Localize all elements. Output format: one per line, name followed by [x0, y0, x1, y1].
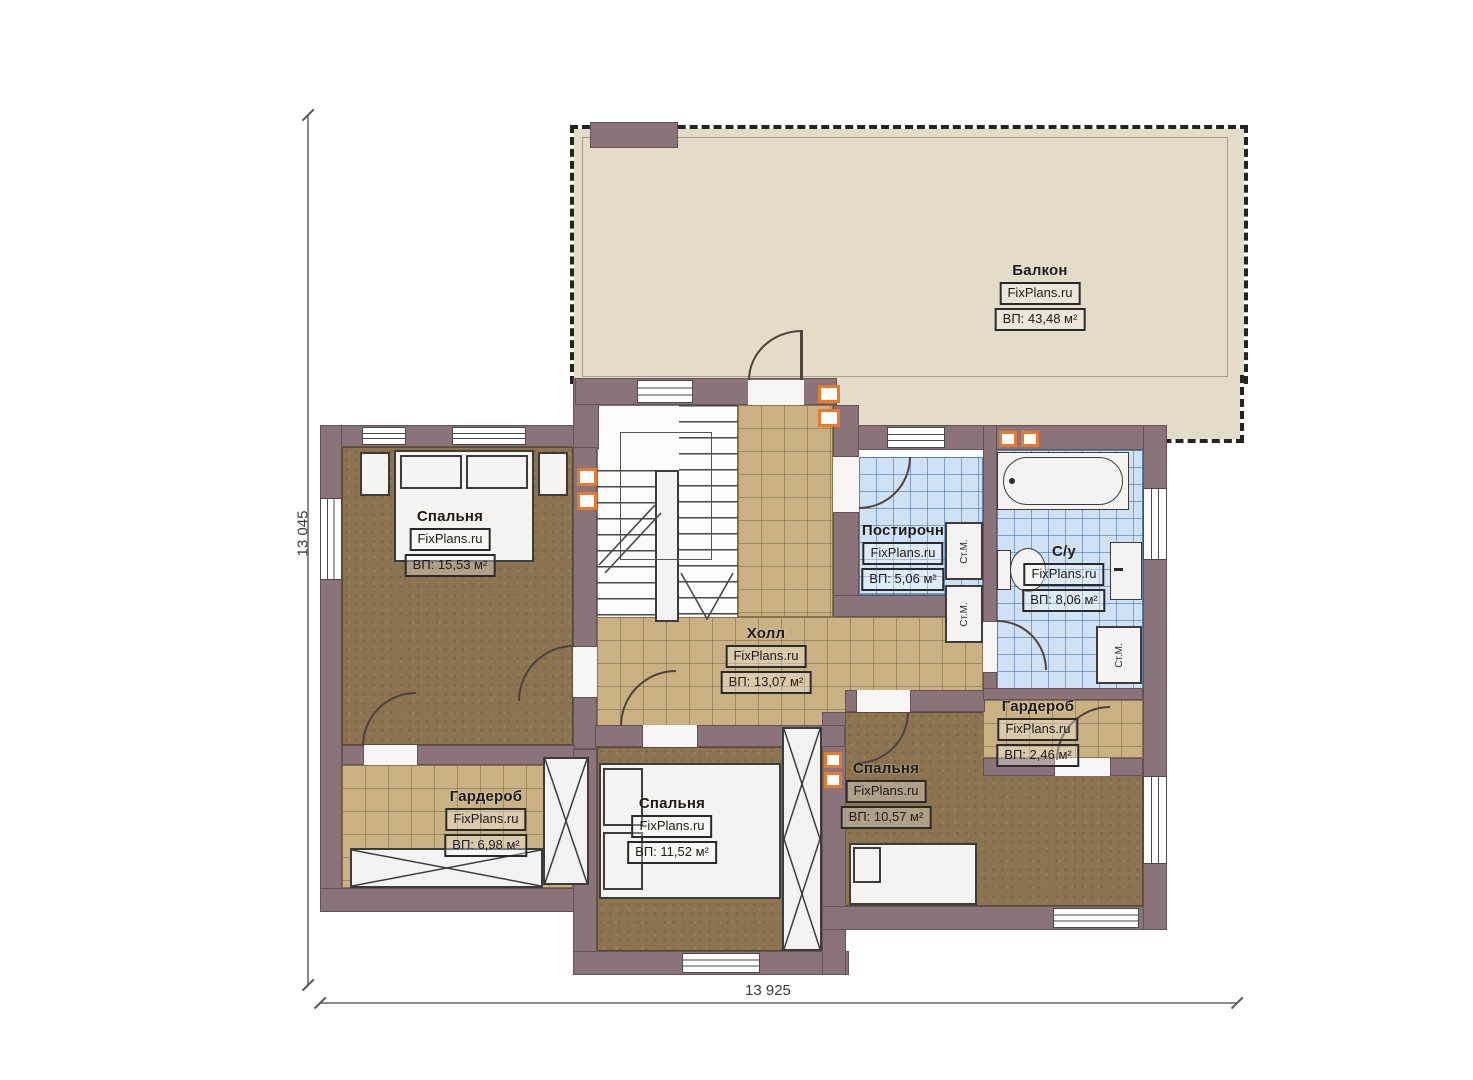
cabinet-cross-lines	[784, 729, 820, 949]
window	[1143, 776, 1167, 864]
doorway	[983, 622, 997, 672]
bathtub-basin	[1003, 457, 1123, 505]
balcony-doorway	[748, 380, 804, 405]
watermark: FixPlans.ru	[445, 808, 526, 831]
doorway	[833, 457, 859, 512]
corridor-floor	[738, 405, 833, 617]
watermark: FixPlans.ru	[1023, 563, 1104, 586]
vanity-handle	[1114, 568, 1123, 571]
vent-marker	[824, 772, 842, 788]
dimension-value-left: 13 045	[295, 499, 312, 569]
balcony-inner-line	[582, 137, 1228, 377]
room-area: ВП: 13,07 м²	[721, 671, 812, 694]
doorway	[573, 647, 597, 697]
room-area: ВП: 43,48 м²	[995, 308, 1086, 331]
vent-marker	[577, 492, 597, 510]
vanity-sink	[1110, 542, 1142, 600]
wall-bedroom-right-top-a	[845, 690, 857, 712]
room-name: Гардероб	[450, 788, 523, 805]
vent-marker	[818, 385, 840, 403]
stairs-break-line	[597, 405, 738, 625]
wall-bottom-left	[320, 888, 597, 912]
watermark: FixPlans.ru	[862, 542, 943, 565]
room-area: ВП: 5,06 м²	[861, 568, 944, 591]
window	[637, 380, 693, 403]
nightstand	[538, 452, 568, 496]
pillow	[400, 455, 462, 489]
watermark: FixPlans.ru	[631, 815, 712, 838]
washing-machine: Ст.М.	[1096, 626, 1142, 684]
room-area: ВП: 6,98 м²	[444, 834, 527, 857]
washing-machine-label: Ст.М.	[959, 539, 970, 564]
washing-machine: Ст.М.	[945, 585, 983, 643]
room-name: С/у	[1052, 543, 1076, 560]
room-label-hall: Холл FixPlans.ru ВП: 13,07 м²	[721, 625, 812, 694]
vent-marker	[1021, 431, 1039, 447]
room-area: ВП: 11,52 м²	[627, 841, 717, 864]
wall-bedroom-right-top-b	[910, 690, 985, 712]
washing-machine-label: Ст.М.	[1114, 643, 1125, 668]
room-name: Спальня	[853, 760, 919, 777]
vent-marker	[818, 409, 840, 427]
vent-marker	[824, 752, 842, 768]
room-label-bedroom-tl: Спальня FixPlans.ru ВП: 15,53 м²	[405, 508, 496, 577]
balcony-wall-stub	[590, 122, 678, 148]
room-name: Спальня	[639, 795, 705, 812]
doorway	[857, 690, 910, 712]
window	[887, 427, 945, 448]
door-leaf	[800, 330, 803, 380]
room-label-laundry: Постирочн FixPlans.ru ВП: 5,06 м²	[861, 522, 944, 591]
window	[1143, 488, 1167, 560]
doorway	[364, 745, 417, 765]
nightstand	[360, 452, 390, 496]
toilet-tank	[997, 550, 1011, 590]
room-area: ВП: 10,57 м²	[841, 806, 932, 829]
washing-machine-label: Ст.М.	[959, 602, 970, 627]
window	[682, 953, 760, 973]
room-area: ВП: 15,53 м²	[405, 554, 496, 577]
room-label-balcony: Балкон FixPlans.ru ВП: 43,48 м²	[995, 262, 1086, 331]
watermark: FixPlans.ru	[409, 528, 490, 551]
window	[362, 427, 406, 445]
wall-bedroom-tl-right-lower	[573, 697, 597, 749]
vent-marker	[577, 468, 597, 486]
watermark: FixPlans.ru	[845, 780, 926, 803]
room-area: ВП: 2,46 м²	[996, 744, 1079, 767]
pillow	[853, 847, 881, 883]
wardrobe-cabinet	[543, 757, 589, 885]
watermark: FixPlans.ru	[999, 282, 1080, 305]
washing-machine: Ст.М.	[945, 522, 983, 580]
room-name: Холл	[747, 625, 785, 642]
dimension-value-bottom: 13 925	[745, 982, 791, 999]
vent-marker	[999, 431, 1017, 447]
window	[452, 427, 526, 445]
room-name: Балкон	[1012, 262, 1067, 279]
watermark: FixPlans.ru	[725, 645, 806, 668]
floor-plan: Ст.М. Ст.М. Ст.М.	[0, 0, 1473, 1080]
wall-bedroom-tl-bottom-a	[342, 745, 364, 765]
wall-wardrobe-small-bottom-b	[1110, 758, 1143, 776]
doorway	[643, 725, 697, 747]
pillow	[466, 455, 528, 489]
room-name: Гардероб	[1002, 698, 1075, 715]
bathtub-faucet	[1009, 478, 1015, 484]
room-label-bedroom-right: Спальня FixPlans.ru ВП: 10,57 м²	[841, 760, 932, 829]
room-label-bedroom-bottom: Спальня FixPlans.ru ВП: 11,52 м²	[627, 795, 717, 864]
room-label-bathroom: С/у FixPlans.ru ВП: 8,06 м²	[1022, 543, 1105, 612]
watermark: FixPlans.ru	[997, 718, 1078, 741]
dimension-line-bottom	[320, 1002, 1237, 1004]
wall-hall-bottom-a	[595, 725, 643, 747]
room-name: Постирочн	[862, 522, 944, 539]
room-label-wardrobe-left: Гардероб FixPlans.ru ВП: 6,98 м²	[444, 788, 527, 857]
wardrobe-cabinet	[782, 727, 822, 951]
room-area: ВП: 8,06 м²	[1022, 589, 1105, 612]
window	[1053, 908, 1139, 928]
window	[320, 498, 342, 580]
wall-hall-bottom-b	[697, 725, 845, 747]
cabinet-cross-lines	[545, 759, 587, 883]
room-name: Спальня	[417, 508, 483, 525]
room-label-wardrobe-small: Гардероб FixPlans.ru ВП: 2,46 м²	[996, 698, 1079, 767]
wall-bath-divider-upper	[983, 425, 997, 622]
